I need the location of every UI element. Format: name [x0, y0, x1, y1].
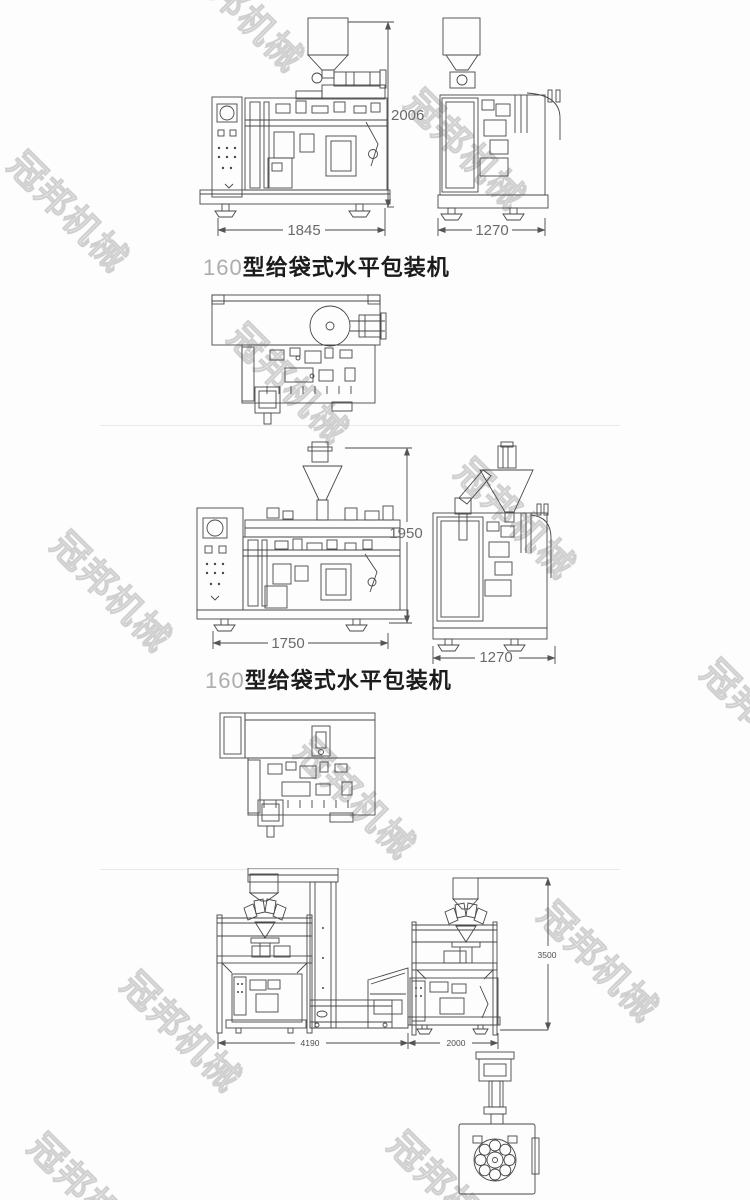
left-multihead-weigher — [244, 874, 290, 957]
dim-total-height-label: 3500 — [538, 950, 557, 960]
dim-total-width-label: 4190 — [301, 1038, 320, 1048]
machine2-front-view-drawing: 1750 1950 — [185, 438, 425, 664]
elevator-head — [476, 1052, 514, 1124]
base-and-feet — [200, 190, 390, 217]
incline-arm — [455, 470, 491, 540]
machine1-front-view-drawing: 1845 2006 — [188, 8, 433, 250]
machine1-title: 160型给袋式水平包装机 — [203, 250, 450, 282]
outfeed-box — [255, 387, 280, 424]
machine-body — [245, 98, 387, 190]
machine1-title-name: 型给袋式水平包装机 — [243, 256, 450, 281]
control-cabinet — [212, 97, 242, 197]
dimension-width: 1270 — [438, 218, 545, 239]
machine-body — [440, 90, 560, 195]
machine1-top-view-drawing — [195, 288, 400, 433]
dimension-machine-width: 2000 — [408, 1033, 498, 1049]
auger-filler — [303, 442, 342, 520]
top-plate — [296, 85, 385, 99]
dim-machine-width-label: 2000 — [447, 1038, 466, 1048]
machine1-side-view-drawing: 1270 — [430, 8, 565, 250]
packaging-line-drawing: 4190 2000 3500 — [110, 868, 570, 1053]
dimension-width: 1750 — [213, 631, 388, 652]
infeed-hopper — [368, 968, 408, 1028]
hopper — [308, 18, 348, 83]
lower-body — [242, 345, 375, 403]
dimension-width: 1845 — [218, 208, 385, 239]
rotary-machine-top-view-drawing — [445, 1048, 565, 1200]
machine-frame — [459, 1124, 539, 1194]
dim-height-label: 1950 — [389, 525, 422, 542]
machine-body — [433, 504, 551, 628]
dimension-width: 1270 — [433, 646, 555, 664]
top-rail — [245, 506, 400, 537]
machine2-title-name: 型给袋式水平包装机 — [245, 669, 452, 694]
right-multihead-weigher — [444, 878, 487, 963]
control-cabinet — [197, 508, 243, 610]
dim-width-label: 1270 — [475, 222, 508, 239]
dimension-height: 1950 — [345, 448, 423, 623]
base-and-feet — [197, 610, 408, 631]
left-packaging-machine — [226, 974, 306, 1033]
auger-filler — [480, 442, 533, 522]
rotary-wheel — [474, 1139, 516, 1181]
base-and-feet — [433, 628, 547, 651]
machine2-side-view-drawing: 1270 — [425, 438, 570, 664]
elevator — [248, 868, 338, 1028]
dimension-height: 2006 — [348, 22, 424, 207]
watermark-text: 冠邦机械 — [18, 1120, 162, 1200]
dim-width-label: 1270 — [479, 649, 512, 664]
dim-width-label: 1750 — [271, 635, 304, 652]
page: 冠邦机械 冠邦机械 冠邦机械 冠邦机械 冠邦机械 冠邦机械 冠邦机械 冠邦机械 … — [0, 0, 750, 1200]
watermark-text: 冠邦机械 — [691, 646, 750, 790]
upper-body — [212, 295, 380, 345]
side-shaft — [350, 313, 386, 339]
upper-body — [245, 713, 375, 758]
machine2-top-view-drawing — [190, 696, 395, 868]
dimension-total-height: 3500 — [478, 878, 557, 1030]
machine2-title-prefix: 160 — [205, 668, 245, 693]
dim-height-label: 2006 — [391, 107, 424, 124]
rotary-disc — [310, 306, 350, 346]
watermark-text: 冠邦机械 — [41, 518, 185, 662]
machine2-title: 160型给袋式水平包装机 — [205, 663, 452, 695]
watermark-text: 冠邦机械 — [0, 138, 142, 282]
base-and-feet — [438, 195, 548, 220]
hopper — [443, 18, 480, 88]
side-tab — [330, 813, 353, 822]
machine1-title-prefix: 160 — [203, 255, 243, 280]
outfeed-box — [258, 800, 283, 837]
dimension-total-width: 4190 — [218, 1033, 408, 1049]
right-packaging-machine — [408, 978, 500, 1034]
dim-width-label: 1845 — [287, 222, 320, 239]
lower-body — [248, 758, 375, 815]
machine-body — [243, 537, 400, 610]
left-box — [220, 713, 245, 758]
